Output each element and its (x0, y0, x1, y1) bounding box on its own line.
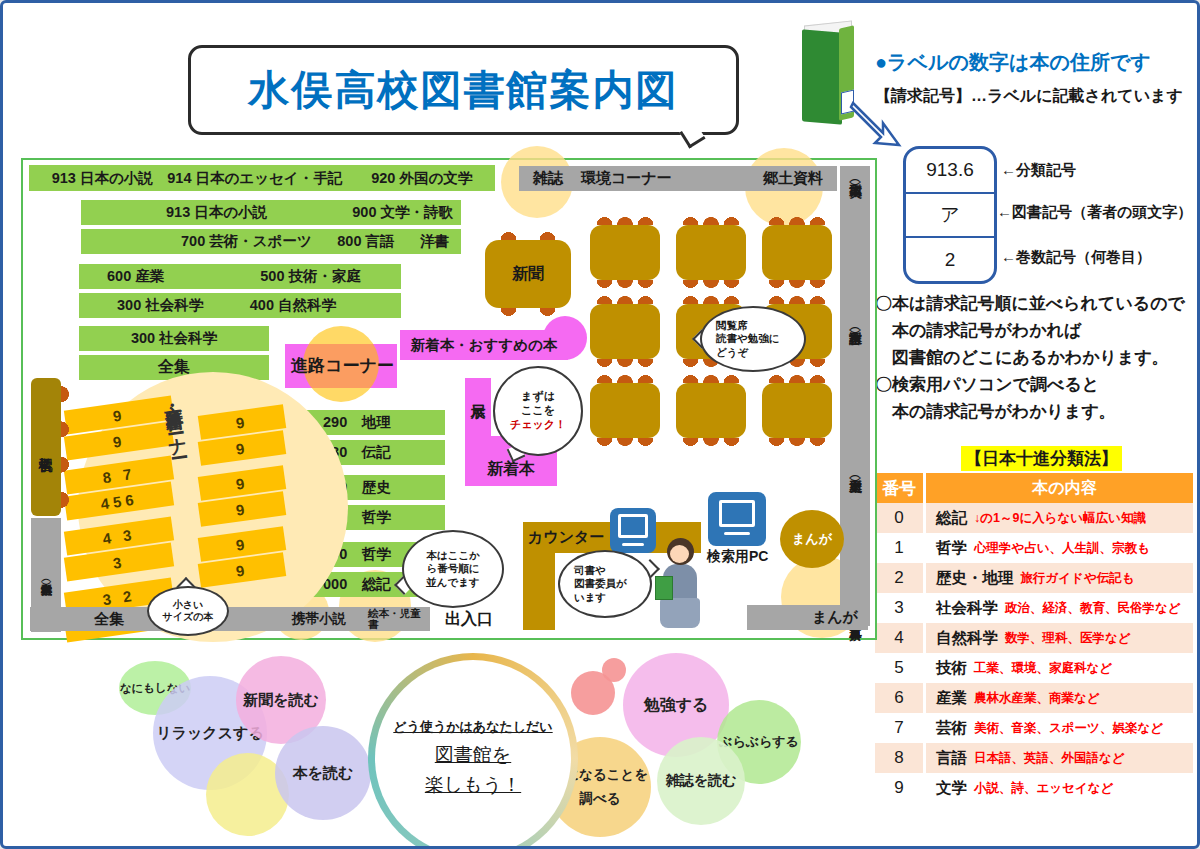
ndc-header-row: 番号 本の内容 (875, 473, 1193, 503)
zone-new-and-recommended: 新着本・おすすめの本 (400, 330, 568, 360)
accent-circle (602, 658, 626, 682)
zone-magazines: 雑誌 (533, 169, 563, 188)
zone-manga-shelf: まんが (747, 605, 868, 630)
class-mark: 913.6 (906, 149, 994, 192)
table-row: 1 哲学心理学や占い、人生訓、宗教も (875, 533, 1193, 563)
counter-pc-icon (610, 508, 656, 553)
zone-environment-corner: 環境コーナー (581, 169, 672, 188)
shelf-row: 700 芸術・スポーツ 800 言語 洋書 (81, 229, 461, 254)
bottom-wall-shelves: 全集 携帯小説 絵本・児童書 (30, 607, 430, 631)
page-title: 水俣高校図書館案内図 (249, 63, 679, 118)
call-number-label: 913.6 ア 2 (903, 146, 997, 284)
library-enjoy-circle: どう使うかはあなたしだい 図書館を 楽しもう！ (368, 653, 578, 849)
library-guide-poster: 水俣高校図書館案内図 ●ラベルの数字は本の住所です 【請求記号】…ラベルに記載さ… (0, 0, 1200, 849)
top-wall-corner: 雑誌 環境コーナー 郷土資料 (519, 166, 837, 191)
ndc-col-content: 本の内容 (926, 473, 1193, 503)
zone-manga-corner: まんが (780, 510, 844, 568)
small-books-bubble: 小さい サイズの本 (147, 586, 229, 636)
study-desk: 学習机 (31, 378, 61, 516)
table-row: 7 芸術美術、音楽、スポーツ、娯楽など (875, 713, 1193, 743)
zone-counter: カウンター (528, 528, 604, 547)
table-row: 4 自然科学数学、理科、医学など (875, 623, 1193, 653)
reading-table (762, 383, 832, 438)
table-row: 3 社会科学政治、経済、教育、民俗学など (875, 593, 1193, 623)
shelf-row: 600 産業 500 技術・家庭 (79, 264, 401, 289)
shelf-row: 913 日本の小説 900 文学・詩歌 (81, 200, 461, 225)
note-line: 〇本は請求記号順に並べられているので (875, 290, 1195, 317)
author-mark: ア (906, 192, 994, 237)
note-line: 〇検索用パソコンで調べると (875, 371, 1195, 398)
volume-mark-caption: ←巻数記号（何巻目） (1001, 248, 1151, 267)
shelf-row: 300 社会科学 400 自然科学 (79, 293, 401, 318)
reading-table (762, 225, 832, 280)
librarian-illustration (653, 538, 707, 635)
ndc-table: 番号 本の内容 0 総記↓の1～9に入らない幅広い知識 1 哲学心理学や占い、人… (875, 473, 1193, 803)
reading-table (590, 304, 660, 359)
newspaper-table: 新聞 (485, 240, 571, 308)
zone-picture-books: 絵本・児童書 (368, 608, 424, 630)
reading-table (676, 383, 746, 438)
ndc-table-title: 【日本十進分類法】 (961, 446, 1122, 471)
librarian-bubble: 司書や 図書委員が います (558, 550, 652, 618)
activity-read-magazine: 雑誌を読む (657, 737, 745, 825)
table-row: 9 文学小説、詩、エッセイなど (875, 773, 1193, 803)
author-mark-caption: ←図書記号（著者の頭文字） (997, 203, 1192, 222)
table-row: 0 総記↓の1～9に入らない幅広い知識 (875, 503, 1193, 533)
table-row: 5 技術工業、環境、家庭科など (875, 653, 1193, 683)
table-row: 2 歴史・地理旅行ガイドや伝記も (875, 563, 1193, 593)
check-here-bubble: まずは ここを チェック！ (493, 366, 583, 456)
activity-read-book: 本を読む (275, 726, 371, 820)
label-headline: ●ラベルの数字は本の住所です (875, 49, 1151, 76)
table-row: 6 産業農林水産業、商業など (875, 683, 1193, 713)
number-order-bubble: 本はここか ら番号順に 並んでます (402, 530, 504, 608)
zone-mobile-novels: 携帯小説 (292, 610, 346, 628)
shelf-row: 300 社会科学 (79, 326, 269, 351)
call-number-subline: 【請求記号】…ラベルに記載されています (875, 86, 1183, 107)
note-line: 本の請求記号がわかります。 (875, 398, 1195, 425)
ndc-col-number: 番号 (875, 473, 923, 503)
reading-table (590, 225, 660, 280)
volume-mark: 2 (906, 236, 994, 281)
zone-complete-works: 全集 (94, 610, 124, 629)
library-floor-map: 913 日本の小説 914 日本のエッセイ・手記 920 外国の文学 雑誌 環境… (21, 158, 877, 640)
zone-exit: 出入口 (445, 609, 493, 630)
title-bubble: 水俣高校図書館案内図 (188, 45, 739, 135)
reading-table (590, 383, 660, 438)
table-row: 8 言語日本語、英語、外国語など (875, 743, 1193, 773)
zone-search-pc: 検索用PC (707, 548, 768, 566)
reading-table (676, 225, 746, 280)
shelf-japanese-fiction-wall: 913 日本の小説 914 日本のエッセイ・手記 920 外国の文学 (29, 165, 495, 191)
search-pc-icon (708, 492, 766, 546)
zone-local-materials: 郷土資料 (763, 169, 823, 188)
call-number-notes: 〇本は請求記号順に並べられているので 本の請求記号がわかれば 図書館のどこにある… (875, 290, 1195, 425)
note-line: 本の請求記号がわかれば (875, 317, 1195, 344)
class-mark-caption: ←分類記号 (1001, 161, 1076, 180)
note-line: 図書館のどこにあるかわかります。 (875, 344, 1195, 371)
right-wall-shelves: 大型本（美術） 大型本（言語） 大型本（歴史） 百科事典 (840, 166, 870, 626)
book-cover-icon (802, 29, 842, 124)
reading-seats-bubble: 閲覧席 読書や勉強に どうぞ (700, 306, 806, 372)
